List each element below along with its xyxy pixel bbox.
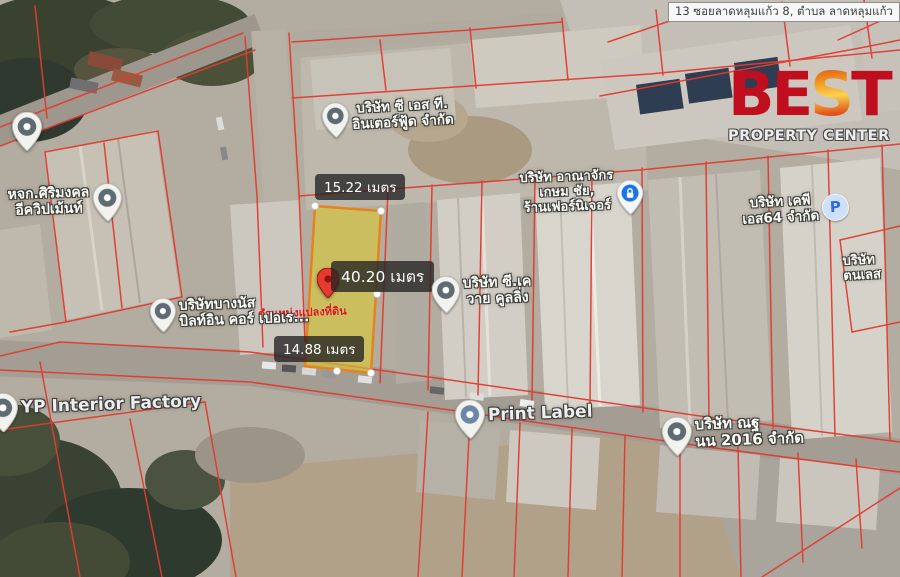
flame-s-glyph: S bbox=[810, 59, 851, 130]
place-label-line: Print Label bbox=[488, 403, 593, 426]
place-pin-icon bbox=[92, 183, 122, 222]
place-label-sirimongkol[interactable]: หจก.ศิริมงคล อีควิปเม้นท์ bbox=[7, 183, 122, 225]
place-label-line: นน 2016 จำกัด bbox=[695, 430, 804, 451]
place-label-ck-cooling[interactable]: บริษัท ซี.เค วาย คูลลิ่ง bbox=[431, 273, 532, 313]
lock-pin-icon bbox=[616, 180, 643, 215]
parking-icon[interactable]: P bbox=[821, 193, 849, 221]
logo-wordmark: BEST bbox=[728, 64, 896, 125]
address-bar: 13 ซอยลาดหลุมแก้ว 8, ตำบล ลาดหลุมแก้ว bbox=[668, 2, 900, 22]
place-label-line: วาย คูลลิ่ง bbox=[466, 289, 529, 307]
place-label-line: บิลท์อิน คอร์ เปอเร... bbox=[179, 309, 310, 330]
place-pin-icon bbox=[321, 102, 350, 138]
place-pin-icon[interactable] bbox=[12, 112, 42, 151]
place-label-yp-interior[interactable]: YP Interior Factory bbox=[0, 386, 202, 432]
place-pin-icon bbox=[431, 276, 460, 314]
place-label-anajak[interactable]: บริษัท อาณาจักร เกษม ชัย, ร้านเฟอร์นิเจอ… bbox=[519, 168, 643, 218]
place-label-nt2016[interactable]: บริษัท ณฐ นน 2016 จำกัด bbox=[661, 413, 804, 457]
best-property-center-logo: BEST PROPERTY CENTER bbox=[728, 64, 896, 144]
place-label-line: อินเตอร์ฟู้ด จำกัด bbox=[352, 112, 454, 133]
place-pin-icon bbox=[661, 416, 692, 456]
place-label-print-label[interactable]: Print Label bbox=[454, 396, 593, 440]
plot-top-width-tooltip: 15.22 เมตร bbox=[315, 174, 405, 200]
logo-subtitle: PROPERTY CENTER bbox=[728, 128, 896, 144]
place-label-cst-interfood[interactable]: บริษัท ซี เอส ที. อินเตอร์ฟู้ด จำกัด bbox=[321, 97, 454, 139]
place-label-tonles[interactable]: บริษัท ตนเลส bbox=[842, 253, 881, 285]
place-pin-icon bbox=[149, 298, 176, 333]
place-label-line: ร้านเฟอร์นิเจอร์ bbox=[524, 199, 612, 217]
plot-bottom-width-tooltip: 14.88 เมตร bbox=[274, 336, 364, 362]
plot-length-tooltip: 40.20 เมตร bbox=[331, 261, 434, 292]
place-pin-icon bbox=[0, 393, 19, 433]
place-label-line: YP Interior Factory bbox=[21, 392, 202, 418]
place-label-line: อีควิปเม้นท์ bbox=[15, 200, 83, 218]
place-pin-icon bbox=[454, 399, 485, 439]
place-label-kp-s64[interactable]: บริษัท เคพี เอส64 จำกัด P bbox=[741, 191, 849, 228]
place-label-bangnas[interactable]: บริษัทบางนัส บิลท์อิน คอร์ เปอเร... bbox=[149, 293, 309, 333]
satellite-map[interactable]: 15.22 เมตร 40.20 เมตร 14.88 เมตร ตำแหน่ง… bbox=[0, 0, 900, 577]
place-label-line: ตนเลส bbox=[843, 268, 881, 285]
